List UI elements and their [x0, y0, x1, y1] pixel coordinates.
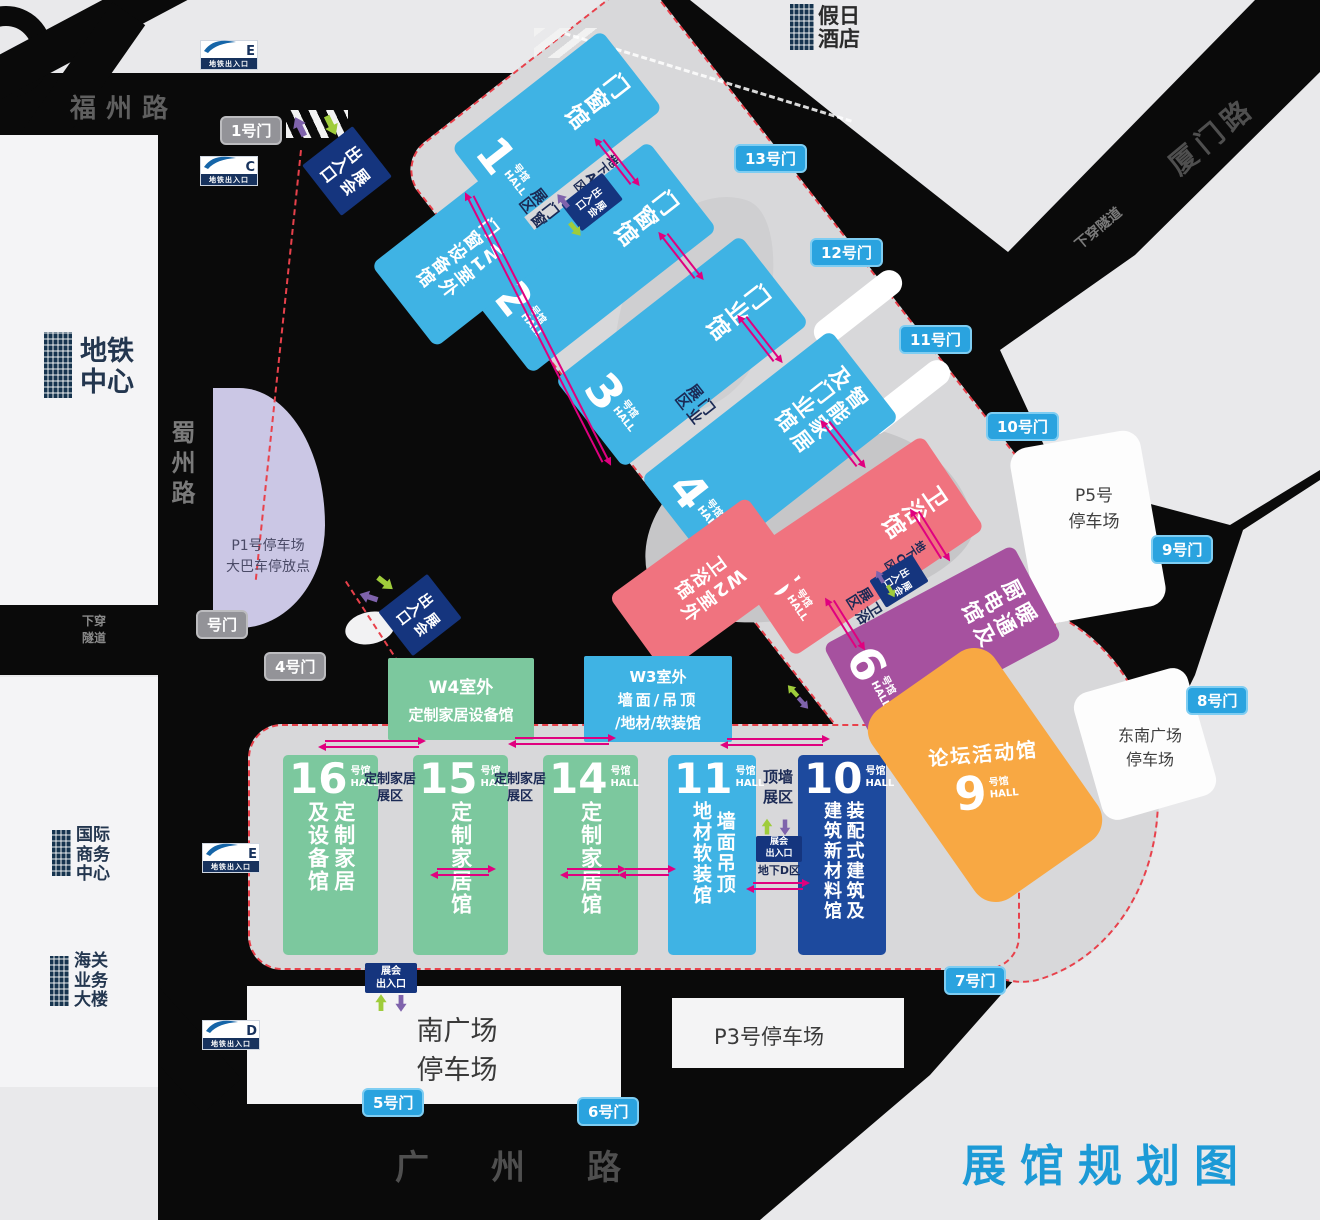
intl-business-label: 国际 商务 中心: [76, 826, 110, 885]
p1-parking-label: P1号停车场大巴车停放点: [216, 536, 320, 578]
outdoor-hall-w3: W3室外 墙面/吊顶 /地材/软装馆: [584, 656, 732, 742]
metro-center-building-icon: [44, 332, 72, 398]
hall-3-name: 门业馆: [697, 275, 774, 344]
road-label-fuzhou: 福州路: [70, 88, 178, 125]
map-title: 展馆规划图: [962, 1130, 1252, 1194]
metro-center-block: [0, 135, 158, 605]
outdoor-hall-w3-line2: 墙面/吊顶: [618, 689, 698, 710]
road-label-shuzhou: 蜀州路: [166, 420, 196, 510]
metro-wave-icon: [205, 1019, 239, 1038]
metro-exit-d: D 地铁出入口: [202, 1020, 260, 1050]
metro-wave-icon: [203, 155, 237, 174]
hall-15-name: 定制家居馆: [447, 801, 473, 916]
road-label-guangzhou: 广州路: [395, 1140, 683, 1189]
flow-arrows: [437, 868, 489, 876]
hall-6-name: 暖通及 厨电馆: [955, 573, 1041, 652]
flow-arrows: [753, 882, 803, 890]
exhibition-venue-map: 福州路 蜀州路 厦门路 广州路 下穿 隧道 下穿隧道 门窗馆 1 号馆HALL …: [0, 0, 1320, 1220]
outdoor-hall-w4: W4室外 定制家居设备馆: [388, 658, 534, 740]
hall-10-number: 10 号馆HALL: [804, 761, 894, 797]
gate-7: 7号门: [944, 966, 1006, 995]
outdoor-hall-w2-label: W2室外 卫浴馆: [661, 544, 749, 625]
hall-9-content: 论坛活动馆 9 号馆HALL: [927, 733, 1043, 816]
hall-14-number: 14 号馆HALL: [549, 761, 639, 797]
gate-1: 1号门: [220, 116, 282, 145]
outdoor-hall-w4-line1: W4室外: [429, 673, 494, 698]
gate-5: 5号门: [362, 1088, 424, 1117]
metro-exit-e-north: E 地铁出入口: [200, 40, 258, 70]
entrance-arrow-in: [375, 994, 386, 1012]
hall-1-name: 门窗馆: [556, 64, 633, 133]
hall-11: 11 号馆HALL 墙面吊顶 地材软装馆: [668, 755, 756, 955]
southeast-parking-label: 东南广场停车场: [1108, 724, 1192, 772]
zone-dingzhi-2: 定制家居 展区: [486, 772, 554, 806]
gate-4: 4号门: [264, 652, 326, 681]
hotel-building-icon: [790, 4, 814, 50]
metro-exit-e-south: E 地铁出入口: [202, 843, 260, 873]
flow-arrows: [727, 738, 823, 746]
metro-wave-icon: [203, 39, 237, 58]
flow-arrows: [325, 740, 419, 748]
hall-14-name: 定制家居馆: [577, 801, 603, 916]
road-label-tunnel-left: 下穿 隧道: [62, 613, 126, 647]
flow-arrows: [567, 868, 619, 876]
outdoor-hall-w3-line3: /地材/软装馆: [615, 712, 701, 733]
entrance-underground-d: 展会 出入口: [756, 836, 802, 862]
gate-unnumbered: 号门: [196, 610, 248, 639]
metro-wave-icon: [205, 842, 239, 861]
entrance-arrow-in: [762, 819, 773, 836]
entrance-south: 展会 出入口: [365, 963, 417, 993]
entrance-arrow-out: [395, 994, 406, 1012]
gate-10: 10号门: [986, 412, 1059, 441]
outdoor-hall-w4-line2: 定制家居设备馆: [408, 704, 513, 725]
customs-building-icon: [50, 956, 69, 1006]
intl-business-building-icon: [52, 830, 71, 876]
underground-d-label: 地下D区: [753, 862, 805, 878]
hall-10-name: 装配式建筑及 建筑新材料馆: [820, 801, 865, 921]
gate-13: 13号门: [734, 144, 807, 173]
flow-arrows: [515, 737, 609, 745]
hotel-label: 假日 酒店: [818, 5, 860, 51]
zone-dingqiang: 顶墙 展区: [750, 768, 806, 807]
gate-12: 12号门: [810, 238, 883, 267]
customs-label: 海关 业务 大楼: [74, 952, 108, 1011]
gate-11: 11号门: [899, 325, 972, 354]
p5-parking-label: P5号停车场: [1058, 484, 1130, 535]
entrance-arrow-out: [780, 819, 791, 836]
metro-center-label: 地铁 中心: [80, 336, 134, 398]
metro-exit-c: C 地铁出入口: [200, 156, 258, 186]
hall-10: 10 号馆HALL 装配式建筑及 建筑新材料馆: [798, 755, 886, 955]
flow-arrows: [625, 868, 669, 876]
zone-dingzhi-1: 定制家居 展区: [356, 772, 424, 806]
gate-8: 8号门: [1186, 686, 1248, 715]
gate-9: 9号门: [1151, 535, 1213, 564]
hall-4-name: 智能家居 及门业馆: [768, 360, 873, 458]
outdoor-hall-w3-line1: W3室外: [630, 666, 687, 687]
south-plaza-parking-label: 南广场停车场: [392, 1012, 522, 1090]
gate-6: 6号门: [577, 1097, 639, 1126]
p3-parking-label: P3号停车场: [704, 1022, 834, 1054]
hall-9-number: 9 号馆HALL: [953, 770, 1020, 815]
hall-11-name: 墙面吊顶 地材软装馆: [688, 801, 736, 906]
hall-14: 14 号馆HALL 定制家居馆: [543, 755, 638, 955]
hall-16-name: 定制家居 及设备馆: [304, 801, 357, 893]
